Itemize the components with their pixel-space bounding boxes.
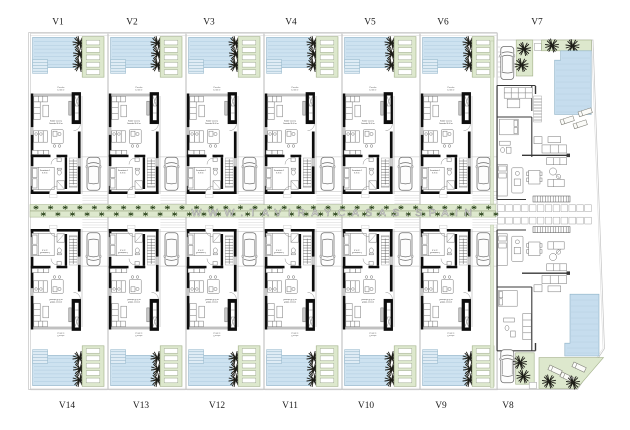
svg-text:V12: V12 [209,401,225,411]
svg-text:V9: V9 [435,401,447,411]
svg-text:V13: V13 [133,401,149,411]
svg-text:V3: V3 [203,18,215,28]
svg-text:V11: V11 [282,401,298,411]
svg-text:V4: V4 [285,18,297,28]
svg-text:V5: V5 [364,18,376,28]
svg-text:V14: V14 [59,401,75,411]
svg-text:V10: V10 [358,401,374,411]
svg-text:WWW.TAVIRAYCASAS.SPAIN: WWW.TAVIRAYCASAS.SPAIN [192,207,479,219]
svg-text:V7: V7 [531,18,543,28]
svg-text:V6: V6 [437,18,449,28]
svg-text:V2: V2 [126,18,138,28]
svg-text:V8: V8 [502,401,514,411]
svg-text:V1: V1 [52,18,64,28]
